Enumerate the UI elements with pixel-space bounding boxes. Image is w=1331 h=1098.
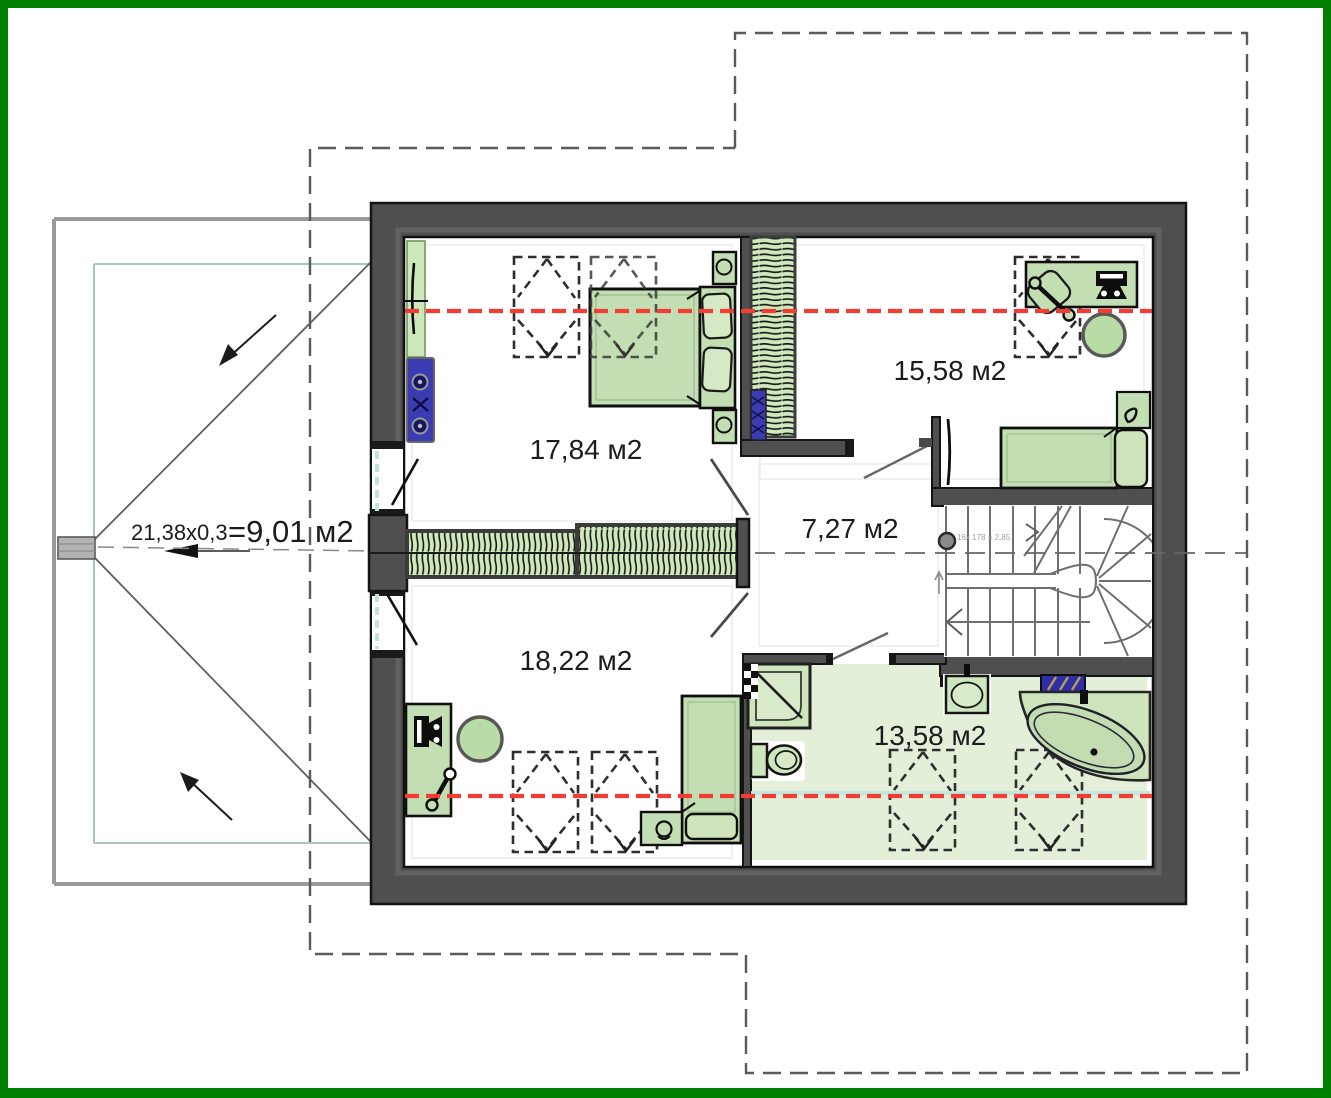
svg-text:13,58 м2: 13,58 м2 — [874, 720, 987, 751]
svg-text:17,84 м2: 17,84 м2 — [530, 434, 643, 465]
svg-text:15,58 м2: 15,58 м2 — [894, 355, 1007, 386]
svg-text:16x 178 = 2,85: 16x 178 = 2,85 — [957, 533, 1011, 542]
svg-text:18,22 м2: 18,22 м2 — [520, 645, 633, 676]
svg-text:7,27 м2: 7,27 м2 — [801, 513, 898, 544]
svg-text:21,38x0,3: 21,38x0,3 — [131, 520, 228, 545]
svg-text:=9,01 м2: =9,01 м2 — [228, 514, 354, 549]
